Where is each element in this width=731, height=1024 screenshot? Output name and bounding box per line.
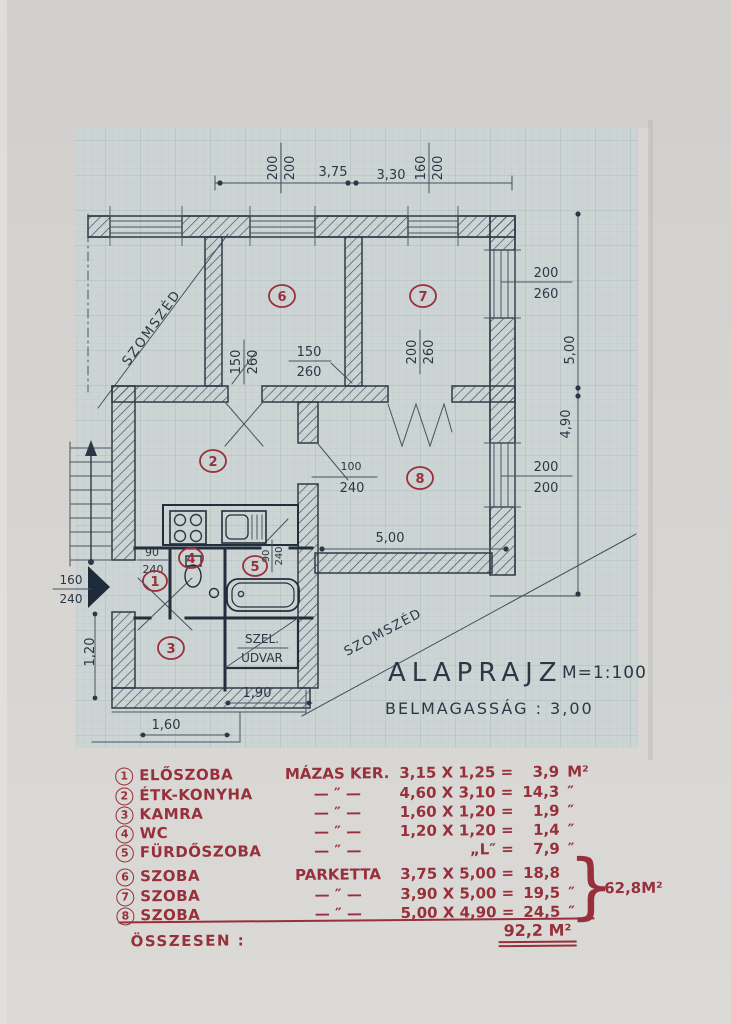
legend-calc: 3,15 X 1,25 = [389, 763, 513, 782]
svg-text:240: 240 [60, 592, 83, 606]
paper-crease [648, 120, 653, 760]
svg-text:200: 200 [534, 481, 559, 496]
legend-room-name: WC [140, 824, 169, 842]
svg-text:90: 90 [145, 546, 159, 559]
legend-calc: „L″ = [390, 840, 514, 859]
dim-room8-width: 5,00 [376, 531, 405, 546]
plan-title: ALAPRAJZ [388, 658, 563, 688]
legend-calc: 1,60 X 1,20 = [389, 802, 513, 821]
legend-room-name: SZOBA [140, 867, 200, 886]
legend-floor-type: — ″ — [282, 885, 394, 904]
svg-text:200: 200 [534, 266, 559, 281]
svg-text:5: 5 [250, 560, 259, 575]
legend-unit: ″ [567, 802, 574, 820]
svg-text:200: 200 [534, 460, 559, 475]
svg-text:4: 4 [186, 552, 195, 567]
legend-room-number: 1 [115, 767, 133, 785]
floor-plan-photo: 200 200 3,75 3,30 160 200 200 260 200 20… [0, 0, 731, 1024]
svg-text:100: 100 [341, 460, 362, 473]
svg-text:90: 90 [261, 550, 272, 563]
dim-bottom-b: 1,60 [152, 718, 181, 733]
svg-text:240: 240 [340, 481, 365, 496]
svg-text:260: 260 [246, 350, 261, 375]
legend-room-name: SZOBA [140, 887, 200, 906]
legend-floor-type: — ″ — [281, 784, 393, 803]
dim-right-height-b: 4,90 [559, 410, 574, 439]
svg-text:7: 7 [418, 290, 427, 305]
legend-area: 18,8 [520, 864, 560, 882]
svg-text:UDVAR: UDVAR [241, 651, 283, 665]
legend-area: 7,9 [520, 840, 560, 858]
legend-area: 19,5 [520, 884, 560, 902]
svg-text:4,90: 4,90 [559, 410, 574, 439]
dim-top-len-b: 3,30 [377, 168, 406, 183]
svg-text:160: 160 [414, 156, 429, 181]
legend-calc: 3,90 X 5,00 = [390, 884, 514, 903]
svg-text:2: 2 [208, 455, 217, 470]
legend-area: 1,4 [520, 821, 560, 839]
legend-floor-type: — ″ — [282, 841, 394, 860]
legend-floor-type: — ″ — [282, 822, 394, 841]
legend-area: 1,9 [519, 802, 559, 820]
legend-area: 3,9 [519, 763, 559, 781]
legend-room-name: ÉTK-KONYHA [139, 785, 252, 804]
legend-floor-type: PARKETTA [282, 865, 394, 884]
svg-text:5,00: 5,00 [563, 336, 578, 365]
total-value: 92,2 M² [498, 921, 576, 948]
legend-unit: ″ [567, 783, 574, 801]
legend-room-number: 2 [115, 787, 133, 805]
svg-text:240: 240 [274, 546, 285, 565]
legend-area: 14,3 [519, 783, 559, 801]
dim-bottom-a: 1,90 [243, 686, 272, 701]
dim-right-height-a: 5,00 [563, 336, 578, 365]
legend-room-name: ELŐSZOBA [139, 765, 233, 784]
legend-floor-type: — ″ — [281, 803, 393, 822]
legend-floor-type: MÁZAS KER. [281, 764, 393, 783]
legend-calc: 3,75 X 5,00 = [390, 864, 514, 883]
svg-text:260: 260 [297, 365, 322, 380]
ceiling-height-note: BELMAGASSÁG : 3,00 [385, 699, 594, 718]
svg-text:6: 6 [277, 290, 286, 305]
legend-unit: M² [567, 762, 589, 780]
dim-top-len-a: 3,75 [319, 165, 348, 180]
svg-text:260: 260 [534, 287, 559, 302]
svg-text:1: 1 [150, 575, 159, 590]
svg-text:150: 150 [297, 345, 322, 360]
svg-text:160: 160 [60, 573, 83, 587]
legend-room-number: 7 [116, 888, 134, 906]
legend-room-name: KAMRA [139, 805, 203, 824]
legend-room-number: 6 [116, 868, 134, 886]
svg-text:150: 150 [229, 350, 244, 375]
legend-room-number: 4 [116, 825, 134, 843]
plan-scale: M=1:100 [562, 663, 647, 683]
svg-text:8: 8 [415, 472, 424, 487]
legend-room-name: FÜRDŐSZOBA [140, 842, 262, 861]
svg-text:200: 200 [283, 156, 298, 181]
svg-text:200: 200 [431, 156, 446, 181]
legend-calc: 4,60 X 3,10 = [389, 783, 513, 802]
legend-calc: 1,20 X 1,20 = [390, 821, 514, 840]
dim-left-height: 1,20 [83, 638, 98, 667]
legend-unit: ″ [568, 821, 575, 839]
legend-room-number: 3 [115, 806, 133, 824]
svg-text:260: 260 [422, 340, 437, 365]
legend-room-number: 5 [116, 844, 134, 862]
svg-text:3: 3 [166, 642, 175, 657]
svg-text:200: 200 [266, 156, 281, 181]
svg-text:200: 200 [405, 340, 420, 365]
svg-text:1,20: 1,20 [83, 638, 98, 667]
area-legend: 1 ELŐSZOBA MÁZAS KER. 3,15 X 1,25 = 3,9 … [111, 759, 698, 979]
rooms-group-total: 62,8M² [604, 879, 663, 898]
total-label: ÖSSZESEN : [131, 931, 246, 950]
svg-text:SZEL.: SZEL. [245, 632, 279, 646]
